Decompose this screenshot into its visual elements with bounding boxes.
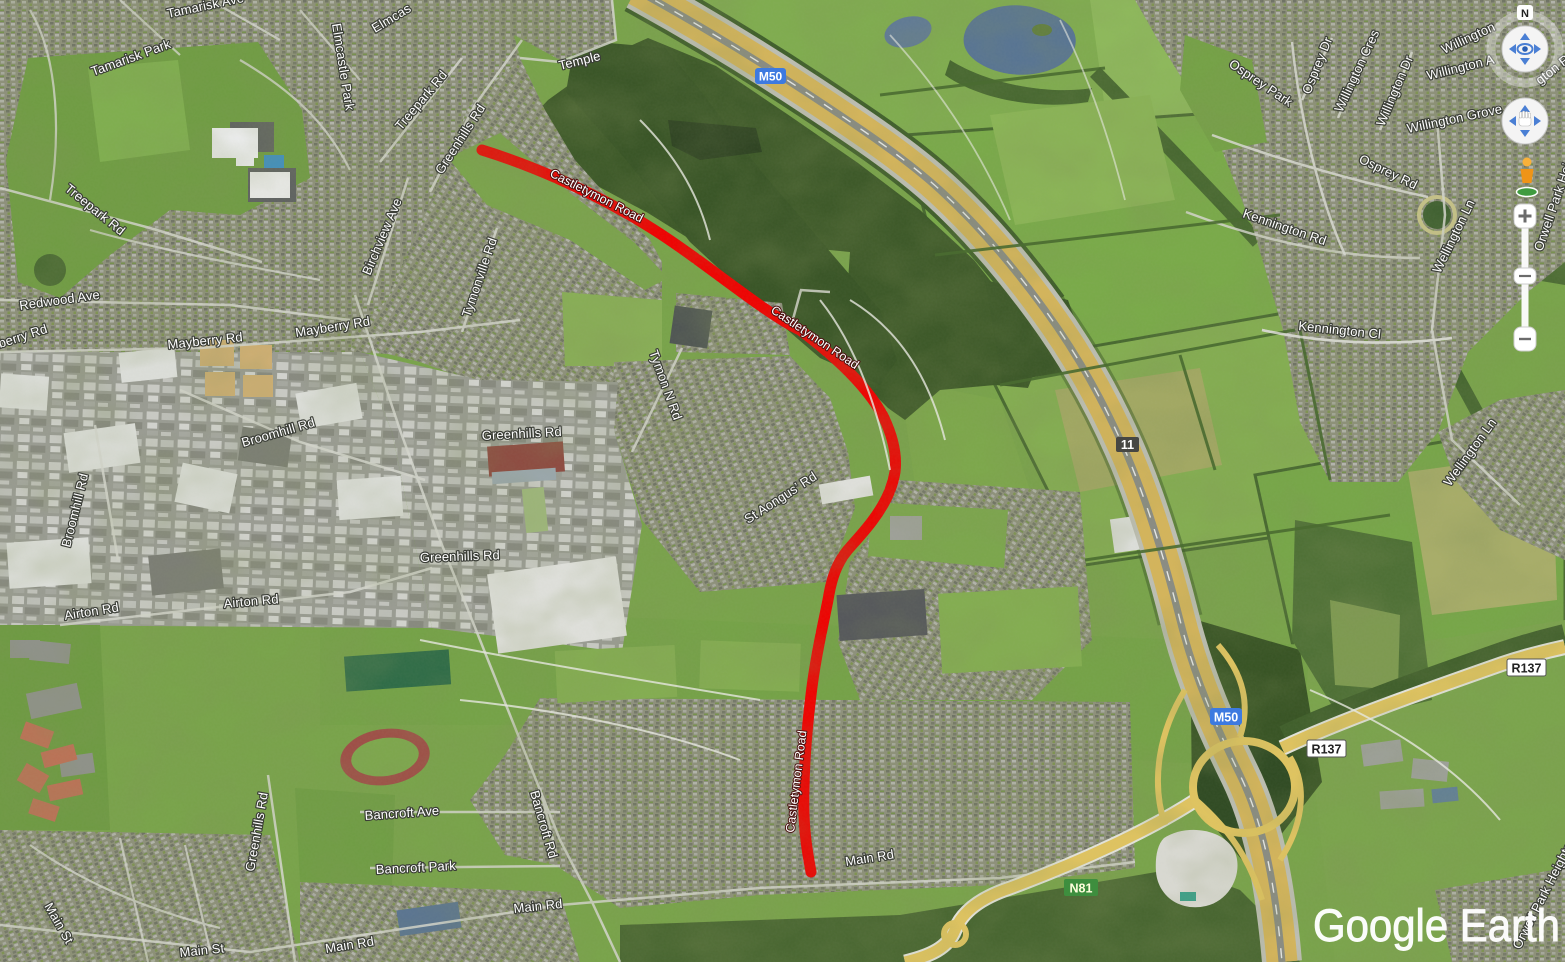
svg-text:Greenhills Rd: Greenhills Rd <box>420 547 501 565</box>
svg-text:R137: R137 <box>1512 662 1542 676</box>
svg-text:M50: M50 <box>1214 711 1238 725</box>
svg-text:R137: R137 <box>1312 743 1342 757</box>
svg-text:Google Earth: Google Earth <box>1313 900 1560 951</box>
svg-text:11: 11 <box>1121 438 1134 452</box>
svg-text:N81: N81 <box>1070 882 1093 896</box>
svg-text:N: N <box>1521 8 1529 20</box>
svg-text:M50: M50 <box>759 70 783 84</box>
